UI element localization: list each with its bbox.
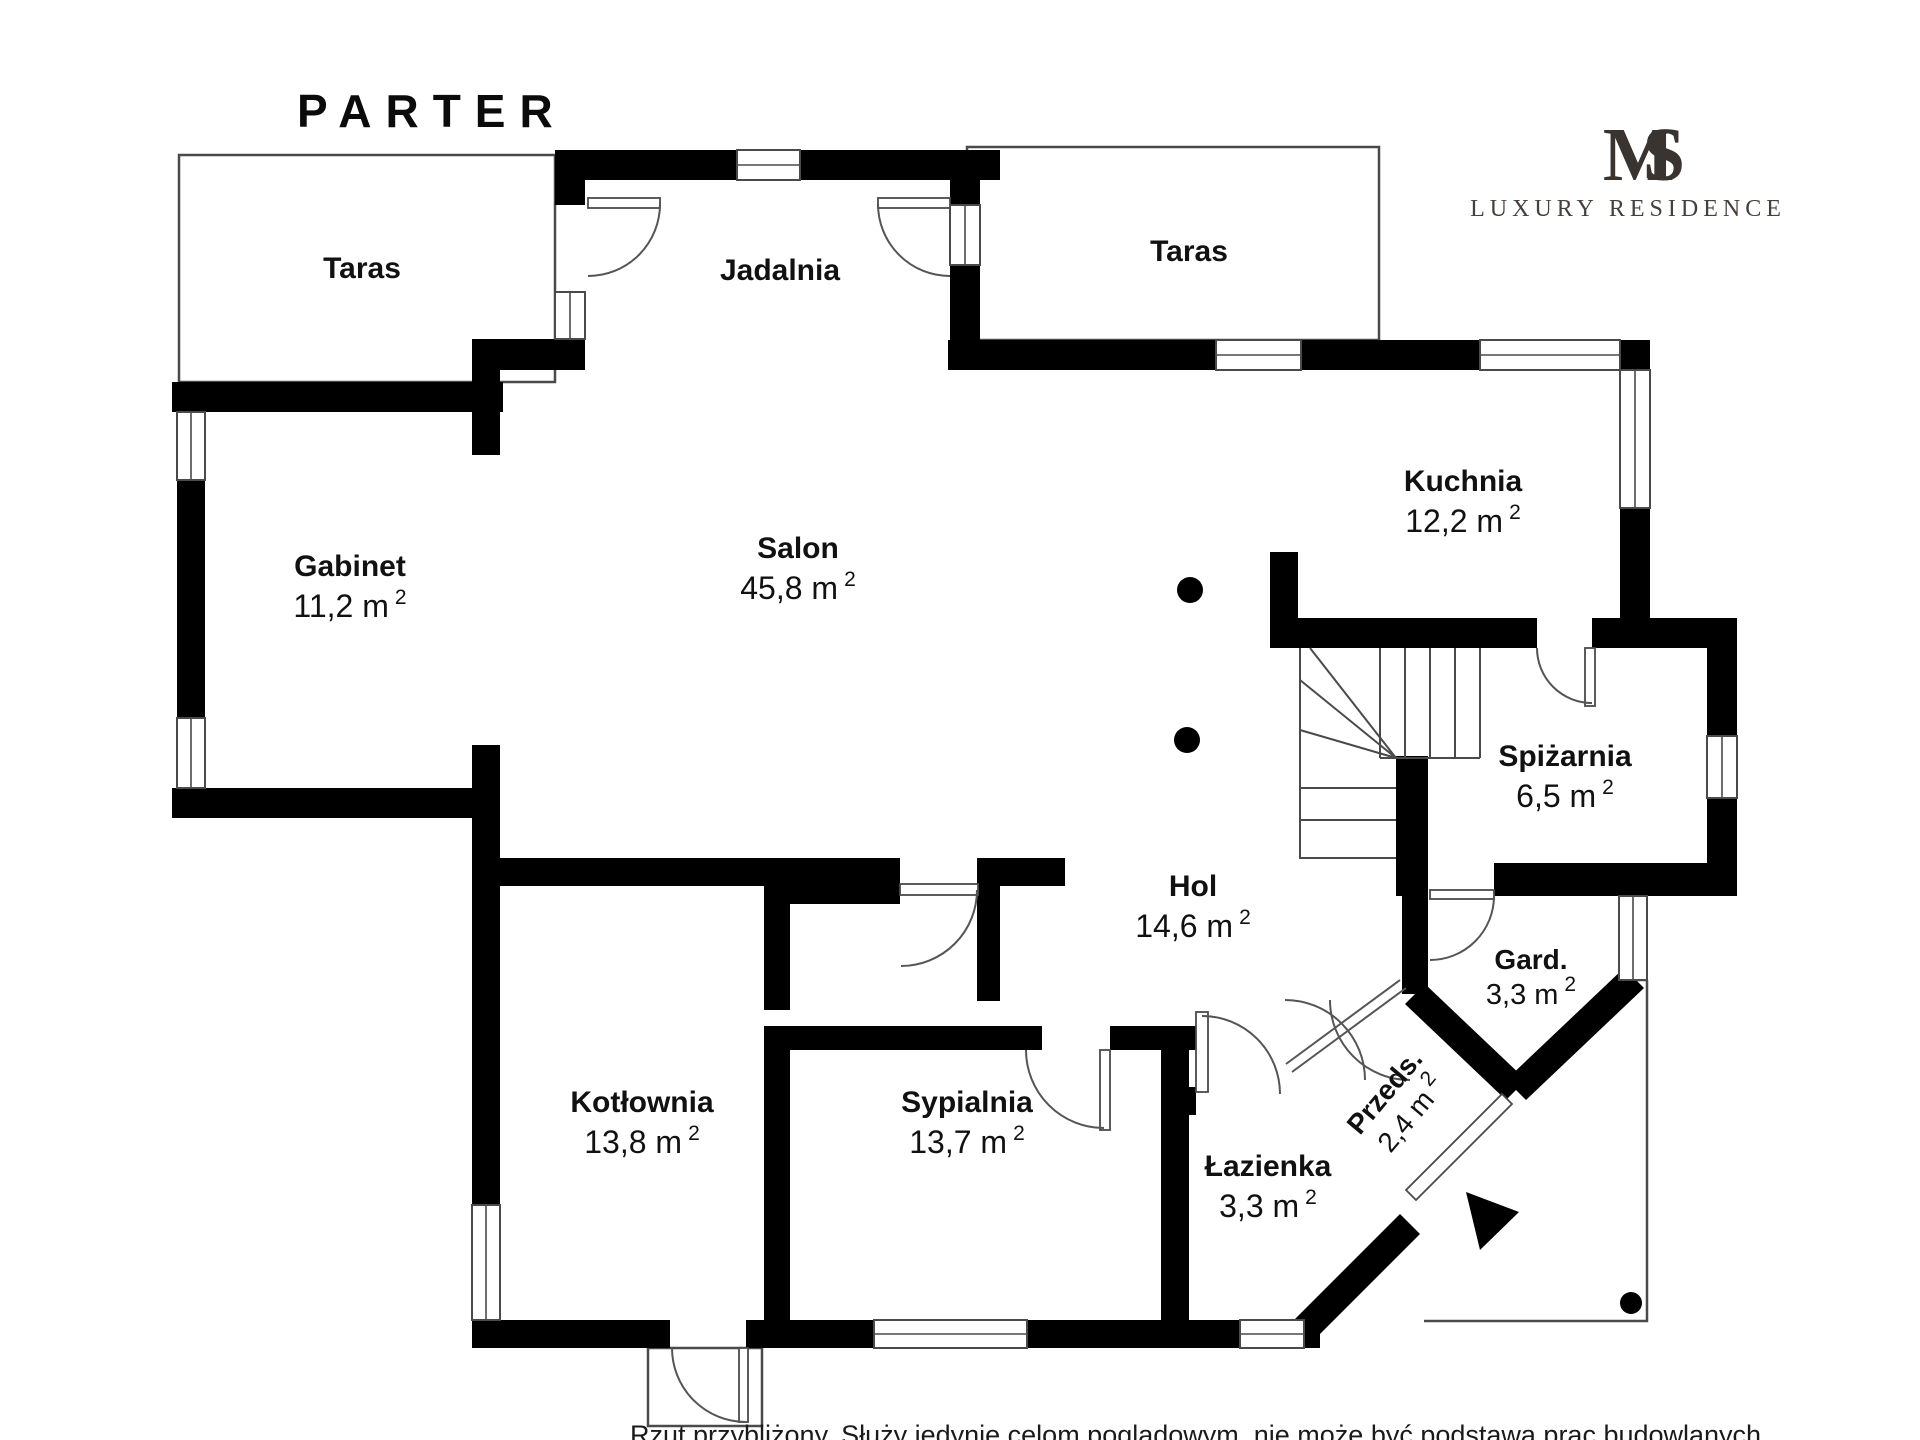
door-frame-lines [1286, 980, 1406, 1072]
plan-title: PARTER [297, 84, 567, 138]
door-arc [588, 204, 660, 276]
door-leaf [588, 198, 660, 208]
room-label-gabinet: Gabinet 11,2 m2 [293, 548, 406, 626]
column-dot [1177, 577, 1203, 603]
stairs [1300, 648, 1480, 858]
door-leaf [739, 1348, 748, 1422]
door-arc [901, 890, 977, 966]
room-label-jadalnia: Jadalnia [720, 252, 840, 290]
room-label-sypialnia: Sypialnia 13,7 m2 [901, 1084, 1033, 1162]
entry-arrow-icon [1466, 1192, 1519, 1250]
door-leaf [1100, 1050, 1110, 1130]
column-dot [1174, 727, 1200, 753]
door-arc [1430, 896, 1494, 960]
door-leaf [1585, 648, 1595, 706]
door-arc [1202, 1016, 1280, 1094]
room-label-hol: Hol 14,6 m2 [1135, 868, 1251, 946]
room-label-taras-right: Taras [1150, 233, 1228, 271]
door-leaf [1430, 890, 1494, 899]
porch-dot [1620, 1292, 1642, 1314]
doors [588, 198, 1595, 1422]
room-label-kotlownia: Kotłownia 13,8 m2 [570, 1084, 713, 1162]
door-arc [1026, 1050, 1104, 1128]
room-label-taras-left: Taras [323, 250, 401, 288]
door-leaf [900, 884, 978, 895]
door-leaf [878, 198, 950, 208]
door-arc [672, 1348, 746, 1422]
room-label-kuchnia: Kuchnia 12,2 m2 [1404, 463, 1522, 541]
room-label-lazienka: Łazienka 3,3 m2 [1205, 1148, 1332, 1226]
room-label-salon: Salon 45,8 m2 [740, 530, 856, 608]
disclaimer-text: Rzut przybliżony. Służy jedynie celom po… [630, 1420, 1761, 1440]
floorplan-page: PARTER MS LUXURY RESIDENCE Taras Jadalni… [0, 0, 1920, 1440]
brand-name: LUXURY RESIDENCE [1438, 196, 1818, 223]
room-label-spizarnia: Spiżarnia 6,5 m2 [1498, 738, 1631, 816]
room-label-gard: Gard. 3,3 m2 [1486, 942, 1576, 1013]
brand-monogram-icon: MS [1508, 112, 1748, 199]
door-leaf [1196, 1012, 1208, 1092]
door-arc [1537, 648, 1592, 703]
door-arc [878, 204, 950, 276]
